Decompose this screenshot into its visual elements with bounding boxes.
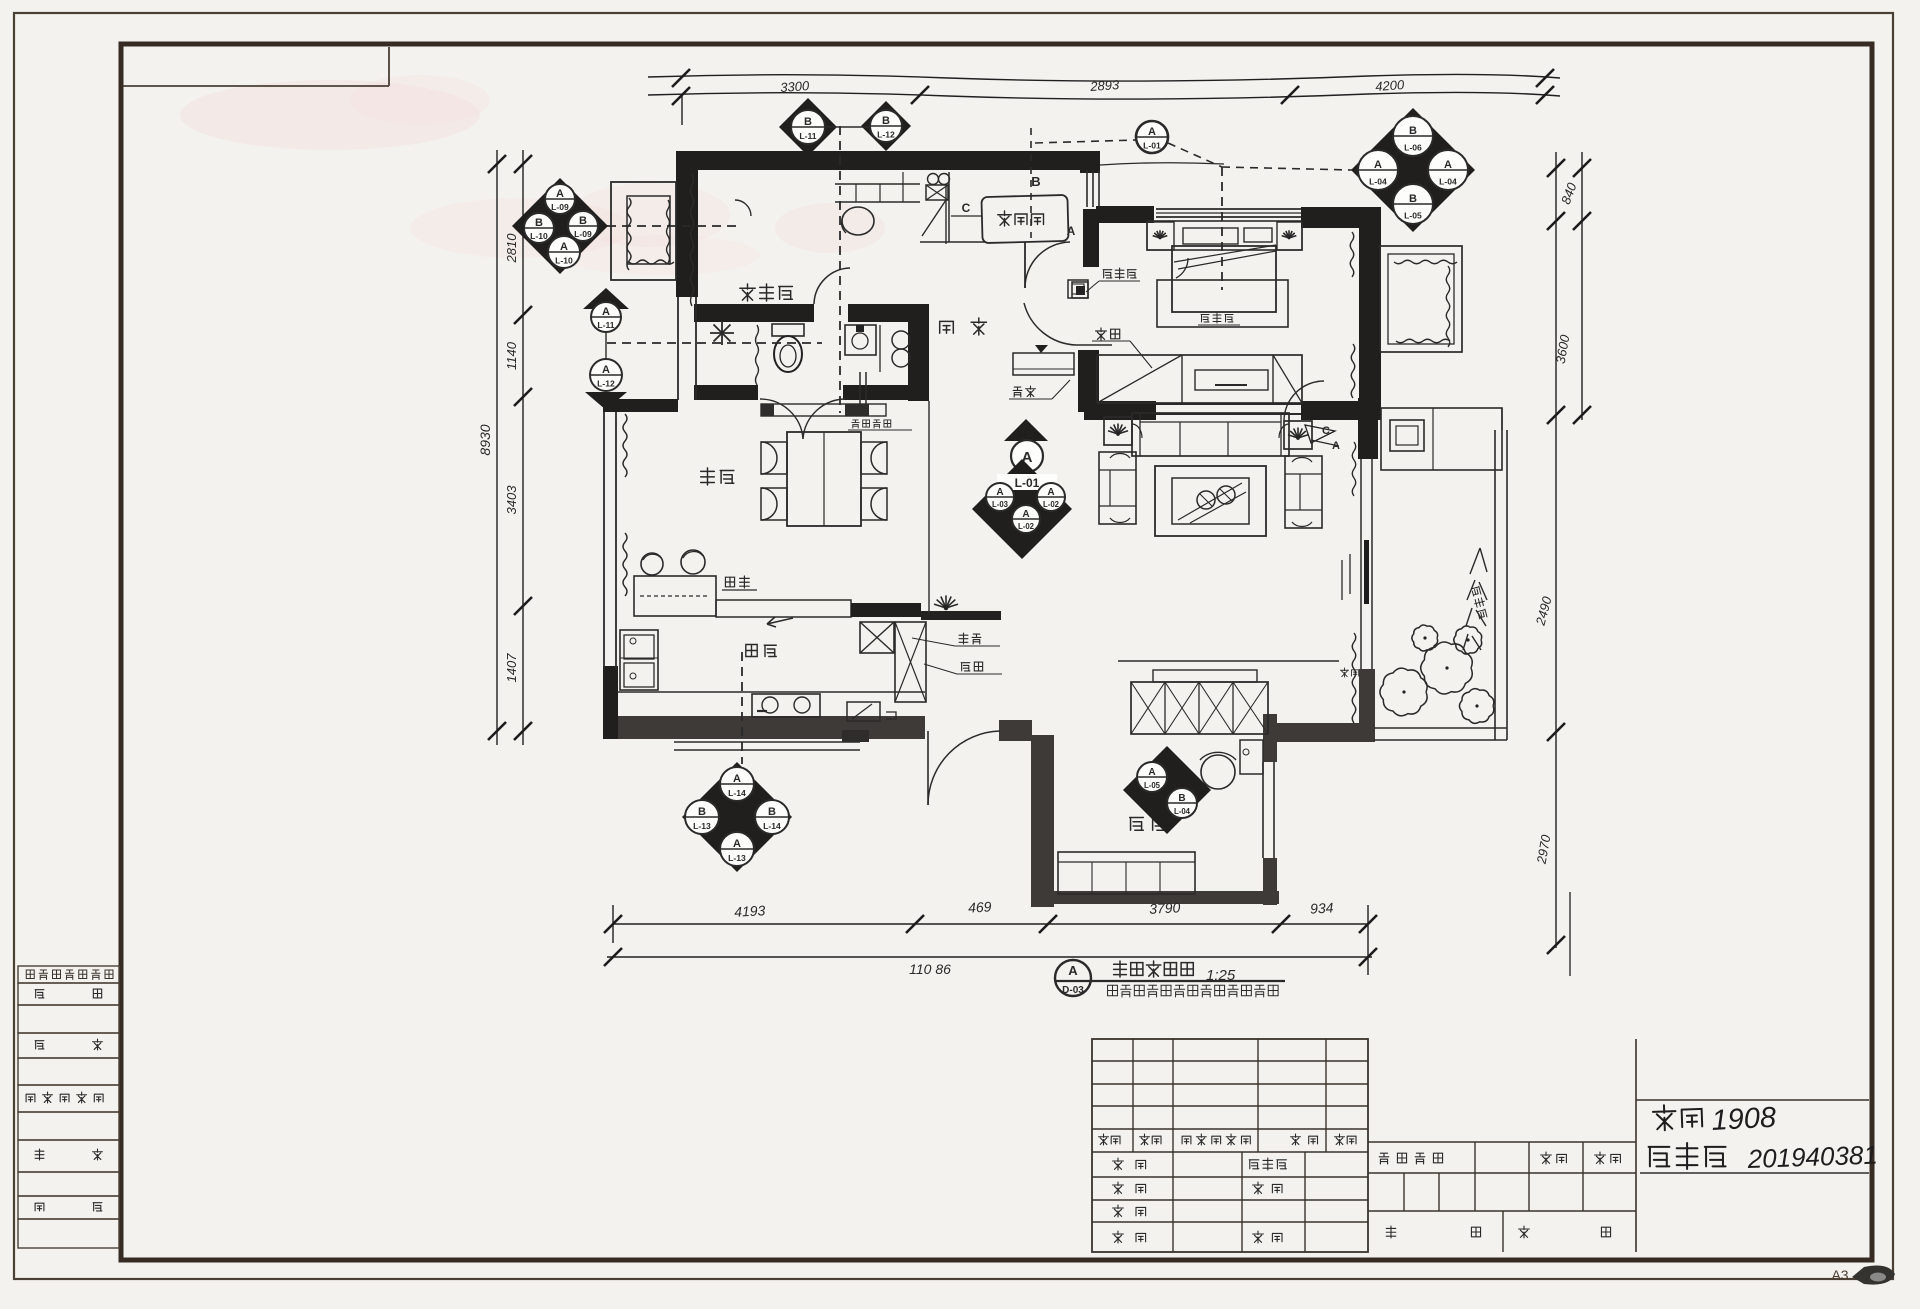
svg-text:L-04: L-04 (1369, 176, 1387, 186)
svg-text:A: A (1374, 159, 1382, 171)
svg-text:2893: 2893 (1089, 77, 1121, 94)
svg-text:A: A (1047, 487, 1054, 498)
svg-text:110 86: 110 86 (909, 961, 951, 977)
svg-text:L-10: L-10 (530, 231, 548, 241)
svg-text:A: A (1148, 767, 1155, 778)
svg-text:L-01: L-01 (1015, 476, 1040, 490)
svg-text:L-05: L-05 (1144, 781, 1161, 790)
svg-text:L-01: L-01 (1143, 141, 1161, 151)
svg-text:A: A (1022, 509, 1029, 520)
svg-text:L-14: L-14 (728, 788, 746, 798)
svg-text:A: A (1067, 224, 1076, 238)
svg-text:B: B (579, 215, 587, 227)
svg-text:3300: 3300 (780, 78, 811, 95)
svg-text:201940381: 201940381 (1746, 1139, 1878, 1174)
svg-text:934: 934 (1310, 899, 1334, 916)
svg-text:L-13: L-13 (728, 853, 746, 863)
svg-text:L-03: L-03 (992, 500, 1009, 509)
svg-text:L-02: L-02 (1043, 500, 1060, 509)
svg-text:A: A (1148, 126, 1156, 138)
svg-text:L-02: L-02 (1018, 522, 1035, 531)
svg-text:B: B (768, 806, 776, 818)
svg-text:D-03: D-03 (1062, 985, 1084, 996)
svg-text:L-12: L-12 (597, 379, 615, 389)
svg-text:A: A (602, 364, 610, 376)
svg-text:B: B (1409, 193, 1417, 205)
svg-text:A: A (733, 773, 741, 785)
svg-text:L-04: L-04 (1439, 176, 1457, 186)
svg-text:A: A (560, 241, 568, 253)
svg-text:L-11: L-11 (597, 320, 614, 330)
svg-text:L-14: L-14 (763, 821, 781, 831)
svg-text:L-09: L-09 (551, 202, 569, 212)
svg-text:2810: 2810 (504, 233, 519, 264)
svg-text:4193: 4193 (734, 902, 766, 920)
svg-text:1140: 1140 (504, 341, 519, 370)
svg-text:B: B (882, 115, 890, 127)
svg-text:L-11: L-11 (799, 131, 816, 141)
svg-text:C: C (962, 201, 971, 215)
svg-text:A: A (996, 487, 1003, 498)
svg-text:B: B (535, 217, 543, 229)
svg-text:L-12: L-12 (877, 130, 895, 140)
svg-text:469: 469 (968, 898, 992, 915)
svg-text:L-05: L-05 (1404, 210, 1422, 220)
svg-text:B: B (1031, 174, 1040, 189)
svg-text:C: C (1322, 425, 1330, 437)
svg-text:A: A (602, 306, 610, 318)
svg-text:B: B (1178, 793, 1185, 804)
svg-text:4200: 4200 (1375, 77, 1406, 94)
svg-text:1:25: 1:25 (1206, 967, 1236, 984)
svg-text:B: B (1409, 125, 1417, 137)
svg-text:1908: 1908 (1711, 1102, 1777, 1137)
svg-text:L-09: L-09 (574, 229, 592, 239)
svg-text:8930: 8930 (477, 424, 493, 455)
svg-text:B: B (804, 116, 812, 128)
svg-text:3790: 3790 (1149, 899, 1181, 917)
svg-text:1407: 1407 (504, 653, 519, 683)
svg-text:L-10: L-10 (555, 256, 573, 266)
svg-text:3403: 3403 (504, 485, 519, 515)
svg-text:B: B (698, 806, 706, 818)
svg-text:L-04: L-04 (1174, 807, 1191, 816)
svg-text:A: A (556, 188, 564, 200)
svg-text:L-13: L-13 (693, 821, 711, 831)
svg-text:A: A (1068, 963, 1078, 978)
svg-text:A3: A3 (1831, 1267, 1848, 1283)
svg-text:A: A (1444, 159, 1452, 171)
svg-text:L-06: L-06 (1404, 142, 1422, 152)
svg-text:A: A (733, 838, 741, 850)
